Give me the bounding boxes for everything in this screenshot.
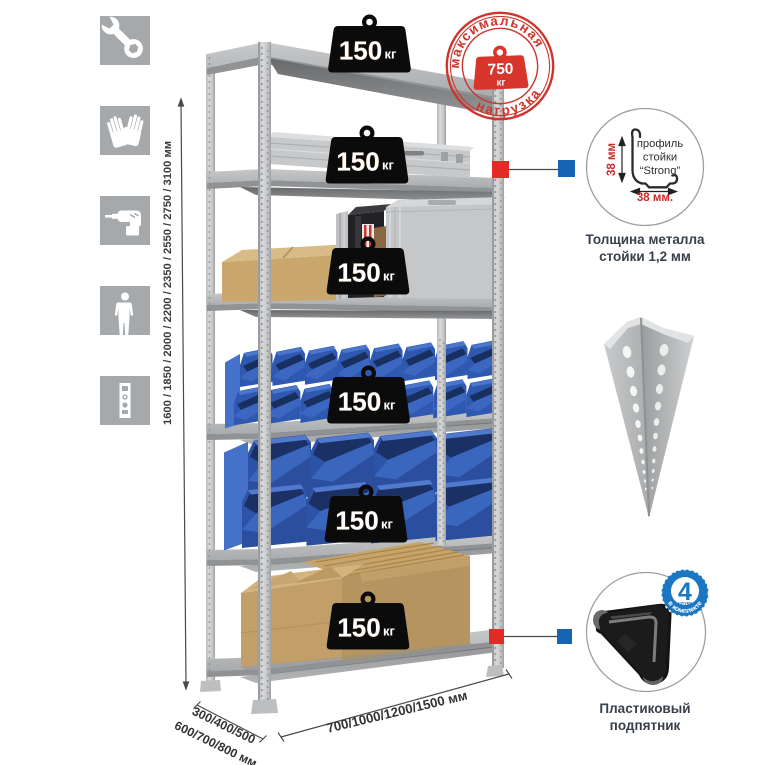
svg-text:750: 750 (487, 61, 513, 79)
svg-text:стойки 1,2 мм: стойки 1,2 мм (599, 249, 691, 264)
svg-text:150: 150 (336, 147, 379, 177)
svg-text:профиль: профиль (637, 138, 683, 150)
svg-text:38 мм: 38 мм (606, 143, 618, 176)
svg-text:подпятник: подпятник (610, 718, 681, 733)
svg-text:150: 150 (335, 506, 378, 536)
svg-text:кг: кг (381, 517, 394, 532)
svg-text:Толщина металла: Толщина металла (585, 232, 705, 247)
svg-text:кг: кг (384, 398, 397, 413)
svg-text:кг: кг (383, 269, 396, 284)
svg-text:кг: кг (385, 47, 398, 62)
svg-text:Пластиковый: Пластиковый (599, 701, 690, 716)
svg-text:кг: кг (496, 77, 506, 88)
svg-text:кг: кг (382, 158, 395, 173)
svg-text:150: 150 (337, 613, 380, 643)
svg-text:“Strong”: “Strong” (640, 165, 681, 177)
svg-text:штуки: штуки (678, 601, 692, 606)
svg-text:150: 150 (339, 36, 382, 66)
svg-text:38 мм.: 38 мм. (637, 192, 673, 204)
svg-text:стойки: стойки (643, 152, 677, 164)
svg-text:кг: кг (383, 624, 396, 639)
svg-text:1600 / 1850 / 2000 / 2200 / 23: 1600 / 1850 / 2000 / 2200 / 2350 / 2550 … (162, 141, 174, 425)
svg-text:150: 150 (337, 258, 380, 288)
svg-text:150: 150 (338, 387, 381, 417)
